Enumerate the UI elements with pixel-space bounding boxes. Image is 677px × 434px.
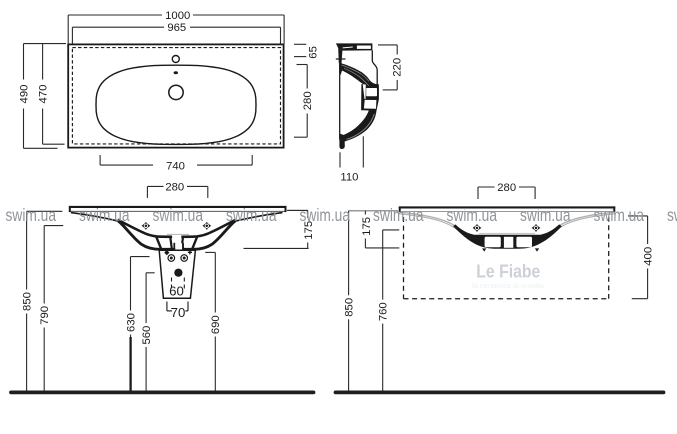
svg-text:280: 280 (165, 182, 184, 194)
svg-text:swim.ua: swim.ua (594, 205, 645, 225)
svg-text:70: 70 (171, 305, 186, 320)
svg-text:850: 850 (21, 292, 33, 311)
svg-text:740: 740 (166, 161, 185, 173)
svg-text:965: 965 (167, 22, 186, 34)
svg-text:swim.ua: swim.ua (300, 205, 351, 225)
svg-text:280: 280 (497, 182, 516, 194)
svg-text:220: 220 (392, 58, 404, 77)
svg-text:swim.ua: swim.ua (226, 205, 277, 225)
svg-text:790: 790 (39, 306, 51, 325)
svg-text:swim.ua: swim.ua (79, 205, 130, 225)
svg-text:Le Fiabe: Le Fiabe (476, 260, 540, 281)
svg-text:490: 490 (18, 85, 30, 104)
svg-text:630: 630 (125, 313, 137, 332)
svg-text:470: 470 (37, 85, 49, 104)
svg-text:swim.ua: swim.ua (153, 205, 204, 225)
svg-text:400: 400 (642, 247, 654, 266)
svg-text:560: 560 (141, 326, 153, 345)
svg-text:850: 850 (343, 298, 355, 317)
svg-text:690: 690 (210, 315, 222, 334)
svg-text:110: 110 (340, 171, 358, 183)
svg-text:65: 65 (308, 46, 320, 59)
svg-text:60: 60 (169, 284, 184, 299)
svg-text:la ceramica di qualita: la ceramica di qualita (472, 281, 545, 290)
svg-text:175: 175 (361, 217, 373, 236)
svg-text:280: 280 (302, 91, 314, 110)
svg-text:swim.ua: swim.ua (667, 205, 677, 225)
svg-text:swim.ua: swim.ua (520, 205, 571, 225)
svg-text:swim.ua: swim.ua (447, 205, 498, 225)
svg-text:swim.ua: swim.ua (373, 205, 424, 225)
svg-text:swim.ua: swim.ua (6, 205, 57, 225)
svg-text:1000: 1000 (165, 10, 190, 22)
svg-text:760: 760 (378, 302, 390, 321)
